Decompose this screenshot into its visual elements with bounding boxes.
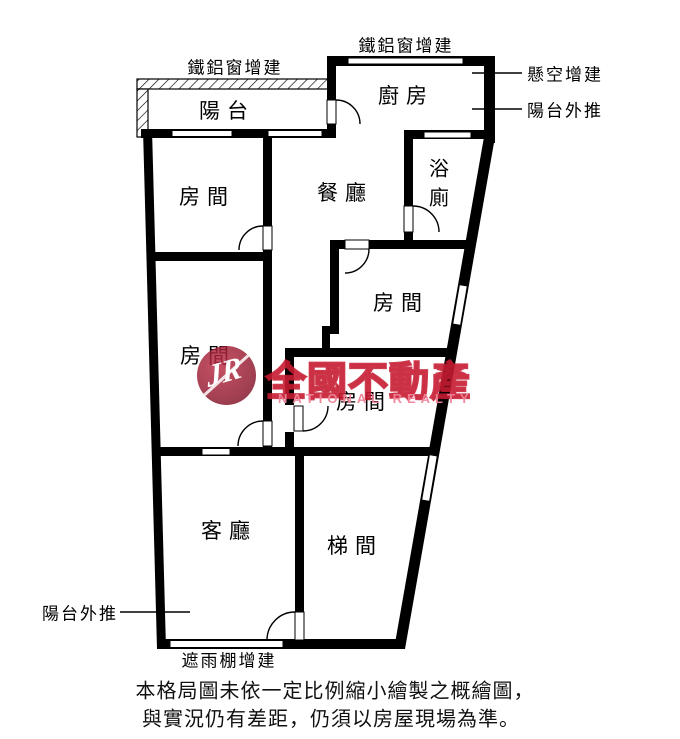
floorplan-page: 陽台 廚房 餐廳 浴廁 房間 房間 房間 房間 客廳 梯間 鐵鋁窗增建 鐵鋁窗增…	[0, 0, 680, 739]
watermark-brand-en: NATIONAL REALTY	[278, 391, 474, 406]
kitchen-label: 廚房	[378, 80, 434, 110]
dining-label: 餐廳	[317, 177, 373, 207]
living-room-label: 客廳	[201, 515, 257, 545]
bedroom1-label: 房間	[179, 181, 235, 211]
caption-line1: 本格局圖未依一定比例縮小繪製之概繪圖，	[136, 675, 535, 704]
balcony-label: 陽台	[199, 95, 255, 125]
balcony-pushout-right-label: 陽台外推	[527, 97, 603, 122]
logo-jr-text: JR	[205, 351, 243, 392]
caption-line2: 與實況仍有差距，仍須以房屋現場為準。	[142, 703, 520, 732]
bedroom3-label: 房間	[373, 287, 429, 317]
realty-logo-icon: JR	[197, 346, 256, 405]
aluminum-window-top-label: 鐵鋁窗增建	[359, 32, 454, 57]
aluminum-window-left-label: 鐵鋁窗增建	[188, 54, 283, 79]
bathroom-label: 浴廁	[424, 158, 453, 216]
suspended-addition-label: 懸空增建	[527, 61, 603, 86]
stairwell-label: 梯間	[327, 530, 383, 560]
balcony-pushout-left-label: 陽台外推	[42, 600, 118, 625]
rain-canopy-label: 遮雨棚增建	[182, 647, 277, 672]
